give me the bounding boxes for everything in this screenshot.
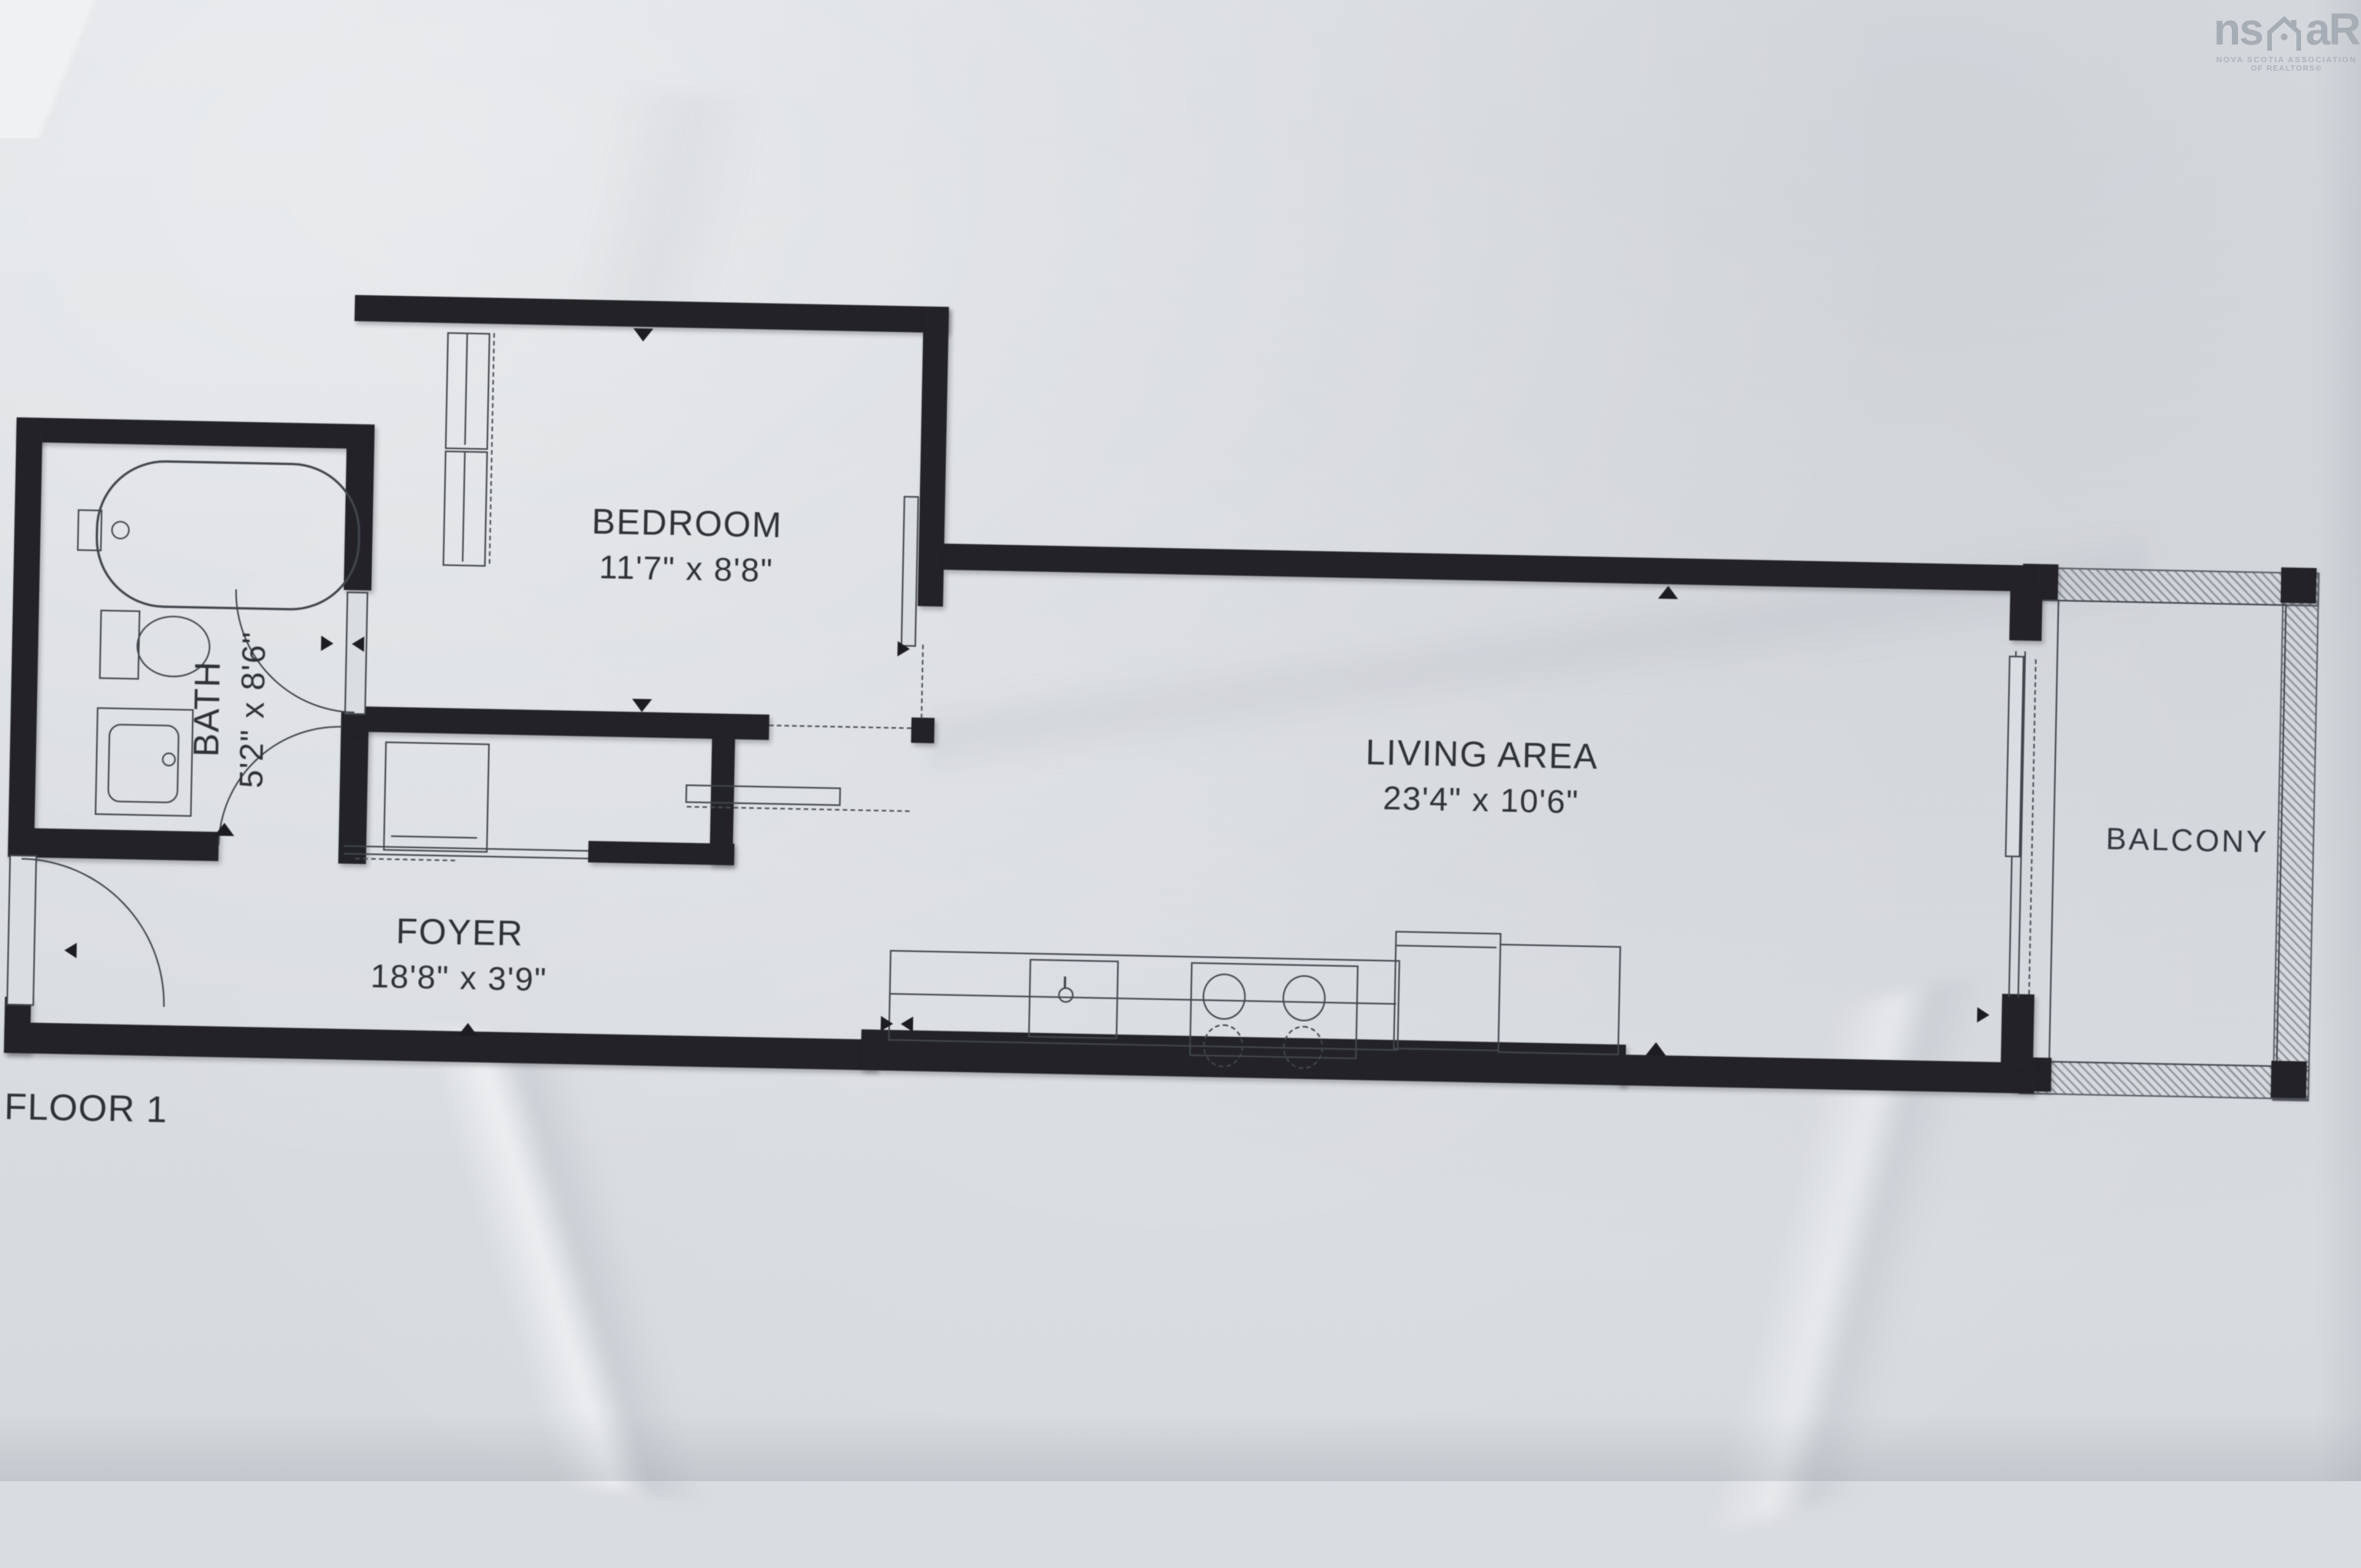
balcony-post [2280, 567, 2316, 603]
bedroom-dims: 11'7" x 8'8" [516, 544, 855, 595]
bedroom-closet-opening-dash [489, 333, 495, 563]
nsar-logo-suffix: aR [2306, 8, 2359, 52]
foyer-label: FOYER 18'8" x 3'9" [294, 905, 626, 1004]
bedroom-bottom-wall [345, 706, 770, 740]
sliding-door-dash [2028, 659, 2037, 995]
photo-edge-shadow [0, 1412, 2361, 1481]
closet-shelf [686, 785, 841, 806]
balcony-label: BALCONY [2080, 819, 2296, 864]
paper-corner-highlight [0, 0, 323, 138]
bedroom-bottom-opening-dash [769, 725, 912, 729]
nsar-logo-prefix: ns [2213, 8, 2263, 52]
marker-triangle-icon [898, 641, 910, 656]
bedroom-sliding-door-leaf [901, 496, 919, 646]
marker-triangle-icon [458, 1023, 478, 1037]
closet-wall-horizontal [588, 841, 735, 865]
bedroom-name: BEDROOM [517, 497, 856, 550]
refrigerator [1393, 931, 1501, 1051]
kitchen-sink [1028, 959, 1119, 1039]
toilet-tank [99, 610, 141, 679]
closet-front-dash [355, 858, 455, 862]
marker-triangle-icon [632, 699, 652, 713]
nsar-logo: ns aR NOVA SCOTIA ASSOCIATION OF REALTOR… [2215, 8, 2358, 73]
nsar-logo-wordmark: ns aR [2215, 8, 2358, 52]
bath-name: BATH [181, 581, 234, 835]
living-area-dims: 23'4" x 10'6" [1307, 775, 1654, 826]
house-icon [2264, 14, 2304, 52]
marker-triangle-icon [1977, 1007, 1989, 1022]
kitchen-faucet-stem [1064, 976, 1066, 988]
floor-label: FLOOR 1 [4, 1086, 168, 1131]
foyer-name: FOYER [294, 905, 626, 959]
nsar-logo-caption-1: NOVA SCOTIA ASSOCIATION [2215, 55, 2358, 65]
bathtub-faucet [77, 510, 102, 552]
marker-triangle-icon [1645, 1042, 1665, 1056]
floor-plan: BEDROOM 11'7" x 8'8" BATH 5'2" x 8'6" LI… [1, 288, 2332, 1241]
foyer-bottom-wall [4, 1022, 877, 1071]
bedroom-opening-stub [911, 717, 935, 743]
living-bottom-wall [1618, 1055, 2035, 1094]
marker-triangle-icon [881, 1016, 893, 1031]
living-area-label: LIVING AREA 23'4" x 10'6" [1307, 728, 1655, 826]
living-area-name: LIVING AREA [1309, 728, 1655, 782]
foyer-top-line [344, 845, 588, 859]
marker-triangle-icon [901, 1016, 913, 1031]
balcony-door-jamb-bottom [2001, 994, 2034, 1067]
entry-door-swing [18, 858, 168, 1007]
marker-triangle-icon [1658, 586, 1678, 600]
nsar-logo-caption-2: OF REALTORS® [2215, 65, 2358, 73]
marker-triangle-icon [633, 328, 653, 342]
bedroom-label: BEDROOM 11'7" x 8'8" [516, 497, 856, 595]
balcony-post [2270, 1061, 2306, 1098]
balcony-door-jamb-top [2009, 591, 2042, 641]
foyer-dims: 18'8" x 3'9" [294, 953, 625, 1004]
bath-top-wall [16, 417, 364, 449]
bath-bedroom-shared-wall-lower [338, 713, 369, 865]
bath-dims: 5'2" x 8'6" [228, 583, 277, 837]
living-top-wall [944, 543, 2029, 591]
marker-triangle-icon [352, 636, 364, 652]
kitchen-cabinet [1497, 944, 1621, 1055]
bedroom-opening-dash [921, 645, 924, 719]
bath-label: BATH 5'2" x 8'6" [181, 581, 325, 838]
marker-triangle-icon [65, 942, 77, 958]
